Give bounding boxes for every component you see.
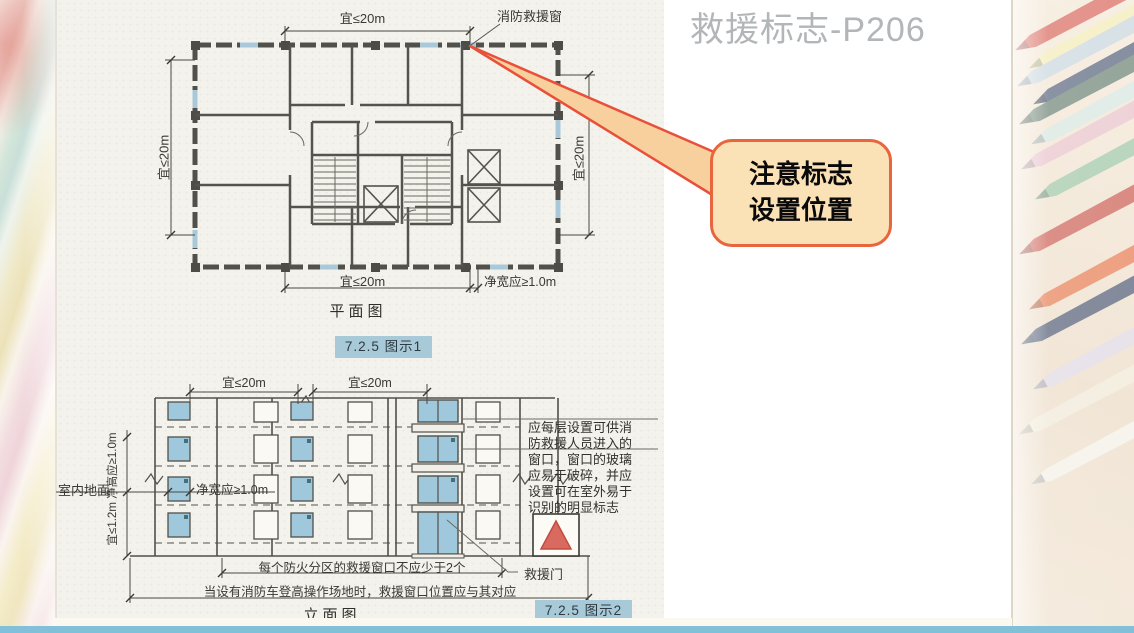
callout-line1: 注意标志 (749, 157, 853, 193)
rescue-sign-triangle-icon (533, 514, 579, 556)
side-note-line: 窗口，窗口的玻璃 (528, 452, 652, 468)
side-note-line: 应每层设置可供消 (528, 420, 652, 436)
side-note-line: 应易于破碎，并应 (528, 468, 652, 484)
plan-clear-width-label: 净宽应≥1.0m (484, 271, 556, 290)
page-title: 救援标志-P206 (690, 2, 926, 51)
side-note-line: 识别的明显标志 (528, 500, 652, 516)
elev-clear-width-label: 净宽应≥1.0m (196, 479, 268, 498)
elev-ground-label: 室内地面 (58, 480, 110, 499)
rescue-window (168, 402, 313, 537)
plan-caption: 平面图 (308, 300, 408, 321)
plan-badge: 7.2.5 图示1 (335, 336, 432, 358)
elev-note-fire-truck: 当设有消防车登高操作场地时，救援窗口位置应与其对应 (160, 581, 560, 600)
diagram-linework (0, 0, 1134, 633)
plan-dim-right: 宜≤20m (569, 109, 588, 209)
plan-dim-top: 宜≤20m (300, 8, 425, 27)
rescue-door (412, 400, 464, 558)
plan-dim-bottom: 宜≤20m (300, 271, 425, 290)
elev-side-note: 应每层设置可供消 防救援人员进入的 窗口，窗口的玻璃 应易于破碎，并应 设置可在… (528, 420, 652, 516)
elev-note-fire-compartment: 每个防火分区的救援窗口不应少于2个 (212, 557, 512, 576)
callout-bubble: 注意标志 设置位置 (710, 139, 892, 247)
side-note-line: 设置可在室外易于 (528, 484, 652, 500)
bottom-blue-bar (0, 626, 1134, 633)
elev-dim-top-left: 宜≤20m (194, 372, 294, 391)
stairs-icon (314, 157, 450, 222)
elev-dim-top-right: 宜≤20m (320, 372, 420, 391)
callout-arrow (470, 46, 714, 196)
callout-line2: 设置位置 (749, 193, 853, 229)
rescue-door-label: 救援门 (524, 564, 563, 583)
plan-rescue-window-label: 消防救援窗 (497, 6, 562, 25)
plan-dim-left: 宜≤20m (154, 108, 173, 208)
bottom-cream-strip (55, 618, 1012, 626)
side-note-line: 防救援人员进入的 (528, 436, 652, 452)
floor-plan-drawing (165, 24, 595, 293)
